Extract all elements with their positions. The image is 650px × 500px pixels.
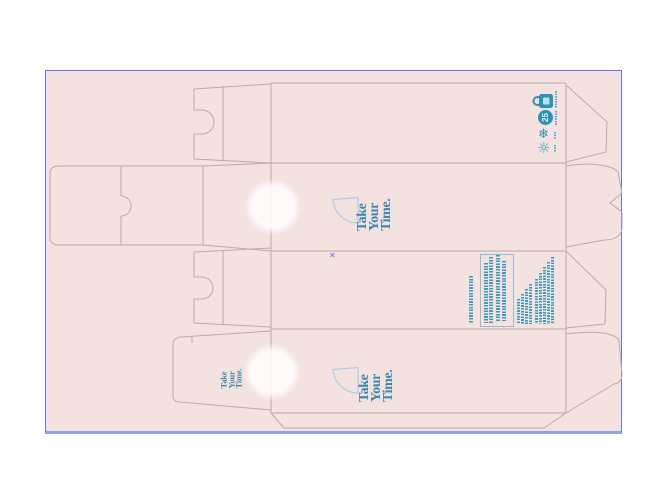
- temperature-value: 25: [541, 113, 550, 122]
- tuck-fold-with-thumb-notch[interactable]: [121, 166, 131, 245]
- fine-print-line: [496, 255, 500, 321]
- logo-word: Time.: [383, 354, 395, 402]
- fine-print-line: [521, 294, 524, 324]
- right-tuck-flap-bottom[interactable]: [566, 332, 622, 413]
- icon-caption-text: [555, 91, 557, 108]
- leaf-mark-back[interactable]: [333, 368, 358, 394]
- fine-print-line: [543, 267, 546, 324]
- icon-caption-text: [554, 145, 556, 152]
- left-dust-flap-top[interactable]: [194, 84, 271, 163]
- temperature-limit-icon[interactable]: 25: [538, 110, 553, 125]
- fine-print-line: [502, 261, 506, 321]
- icon-caption-text: [555, 111, 557, 125]
- fine-print-line: [535, 279, 538, 324]
- icon-caption-text: [554, 132, 556, 139]
- fine-print-line: [525, 289, 528, 324]
- tuck-lid-top-edge[interactable]: [203, 163, 271, 166]
- glue-flap[interactable]: [271, 413, 566, 428]
- fine-print-line: [484, 263, 488, 323]
- brand-logo-side[interactable]: Take Your Time.: [221, 359, 244, 389]
- logo-word: Time.: [381, 183, 393, 231]
- fine-print-line: [489, 257, 493, 323]
- artboard[interactable]: Take Your Time. Take Your Time. Take You…: [45, 70, 622, 434]
- fine-print-line: [529, 284, 532, 324]
- fine-print-line: [539, 273, 542, 324]
- brand-logo-front[interactable]: Take Your Time.: [357, 183, 395, 231]
- fine-print-line: [469, 276, 473, 323]
- sunlight-icon[interactable]: ☼: [537, 141, 550, 156]
- logo-word: Time.: [236, 359, 244, 389]
- selection-anchor-marker: ✕: [329, 252, 336, 260]
- padlock-icon[interactable]: [532, 92, 555, 110]
- right-tuck-flap-top[interactable]: [566, 164, 622, 247]
- brand-logo-back[interactable]: Take Your Time.: [359, 354, 397, 402]
- fine-print-line: [517, 299, 520, 324]
- main-panel-outline[interactable]: [271, 83, 566, 413]
- tuck-flap-outline[interactable]: [50, 166, 203, 245]
- fine-print-line: [547, 262, 550, 324]
- left-dust-flap-bottom[interactable]: [194, 248, 271, 327]
- right-dust-flap-bottom[interactable]: [566, 251, 606, 328]
- canvas[interactable]: Take Your Time. Take Your Time. Take You…: [0, 0, 650, 500]
- fine-print-line: [551, 257, 554, 324]
- right-dust-flap-top[interactable]: [566, 85, 607, 162]
